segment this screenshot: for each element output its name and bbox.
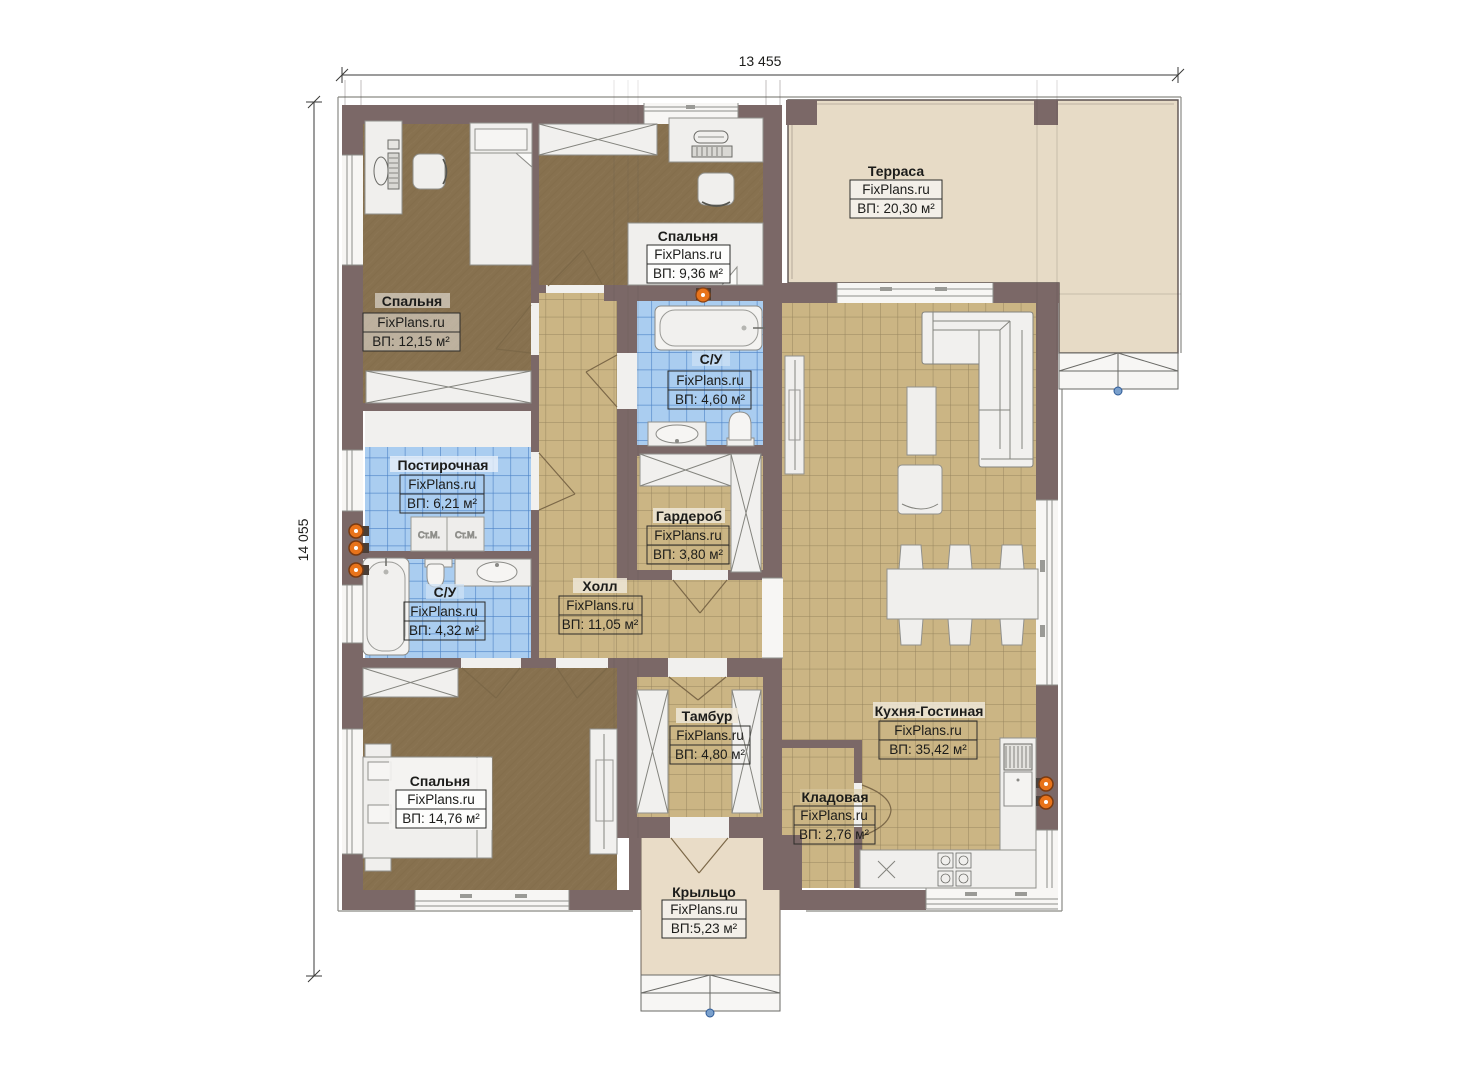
svg-text:Гардероб: Гардероб: [656, 508, 723, 524]
svg-text:FixPlans.ru: FixPlans.ru: [894, 723, 962, 738]
svg-text:ВП: 6,21 м²: ВП: 6,21 м²: [407, 496, 478, 511]
svg-text:FixPlans.ru: FixPlans.ru: [862, 182, 930, 197]
svg-text:14 055: 14 055: [295, 518, 311, 561]
svg-text:Холл: Холл: [582, 578, 617, 594]
svg-text:ВП: 20,30 м²: ВП: 20,30 м²: [857, 201, 935, 216]
svg-text:FixPlans.ru: FixPlans.ru: [800, 808, 868, 823]
svg-text:ВП: 35,42 м²: ВП: 35,42 м²: [889, 742, 967, 757]
svg-text:Терраса: Терраса: [868, 163, 924, 179]
svg-text:ВП: 14,76 м²: ВП: 14,76 м²: [402, 811, 480, 826]
svg-text:Кладовая: Кладовая: [801, 789, 868, 805]
svg-text:Спальня: Спальня: [658, 228, 718, 244]
svg-text:FixPlans.ru: FixPlans.ru: [676, 373, 744, 388]
svg-text:ВП: 4,32 м²: ВП: 4,32 м²: [409, 623, 480, 638]
svg-text:FixPlans.ru: FixPlans.ru: [408, 477, 476, 492]
svg-text:Кухня-Гостиная: Кухня-Гостиная: [875, 703, 984, 719]
svg-text:ВП: 3,80 м²: ВП: 3,80 м²: [653, 547, 724, 562]
svg-text:Постирочная: Постирочная: [398, 457, 489, 473]
svg-text:Тамбур: Тамбур: [682, 708, 733, 724]
svg-text:ВП: 2,76 м²: ВП: 2,76 м²: [799, 827, 870, 842]
svg-text:FixPlans.ru: FixPlans.ru: [654, 247, 722, 262]
svg-text:Спальня: Спальня: [410, 773, 470, 789]
svg-text:FixPlans.ru: FixPlans.ru: [566, 598, 634, 613]
svg-text:Спальня: Спальня: [382, 293, 442, 309]
svg-text:ВП: 4,60 м²: ВП: 4,60 м²: [675, 392, 746, 407]
svg-text:ВП: 4,80 м²: ВП: 4,80 м²: [675, 747, 746, 762]
svg-text:ВП: 11,05 м²: ВП: 11,05 м²: [562, 617, 639, 632]
svg-text:FixPlans.ru: FixPlans.ru: [676, 728, 744, 743]
svg-text:С/У: С/У: [700, 351, 723, 367]
svg-text:С/У: С/У: [434, 584, 457, 600]
svg-text:FixPlans.ru: FixPlans.ru: [377, 315, 445, 330]
svg-text:FixPlans.ru: FixPlans.ru: [670, 902, 738, 917]
svg-text:FixPlans.ru: FixPlans.ru: [410, 604, 478, 619]
svg-text:Ст.М.: Ст.М.: [418, 530, 440, 540]
svg-text:Ст.М.: Ст.М.: [455, 530, 477, 540]
svg-text:FixPlans.ru: FixPlans.ru: [654, 528, 722, 543]
svg-text:13 455: 13 455: [739, 53, 782, 69]
svg-text:ВП: 9,36 м²: ВП: 9,36 м²: [653, 266, 724, 281]
svg-text:FixPlans.ru: FixPlans.ru: [407, 792, 475, 807]
svg-text:ВП:5,23 м²: ВП:5,23 м²: [671, 921, 738, 936]
svg-text:Крыльцо: Крыльцо: [672, 884, 736, 900]
svg-text:ВП: 12,15 м²: ВП: 12,15 м²: [372, 334, 450, 349]
